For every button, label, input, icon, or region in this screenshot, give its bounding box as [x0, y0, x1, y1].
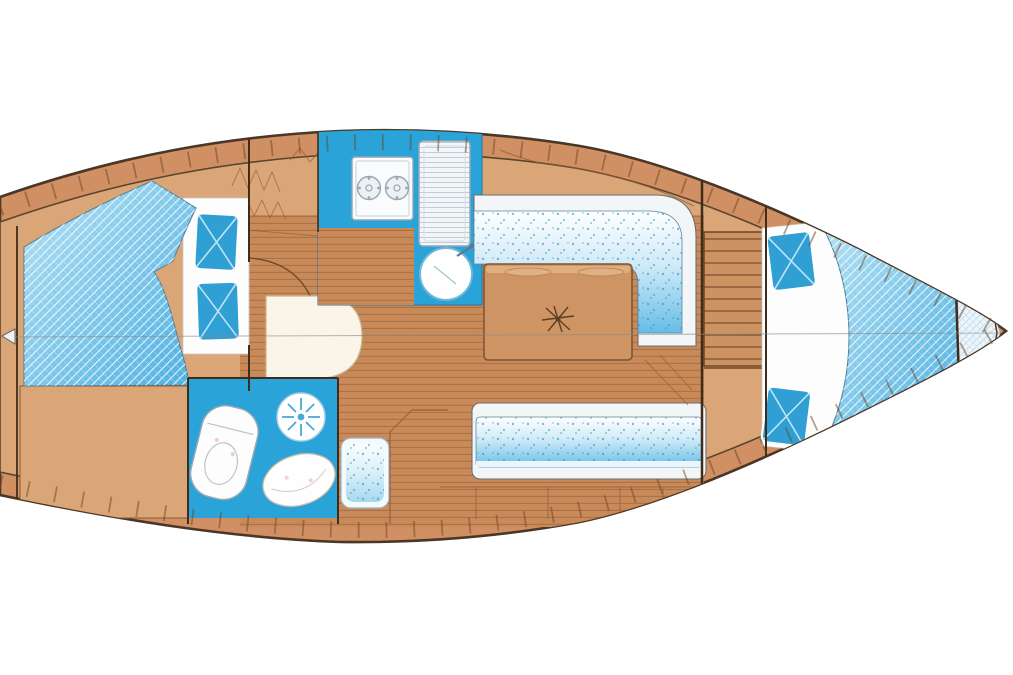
table-recess-1	[505, 268, 551, 276]
yacht-floor-plan	[0, 0, 1013, 675]
floor-plan-stage	[0, 0, 1013, 675]
stove	[352, 157, 413, 220]
v-berth-pillow-1	[194, 213, 239, 271]
saloon-table	[484, 264, 632, 360]
lazarette	[958, 262, 1000, 408]
burner-1	[358, 177, 381, 200]
shower-rose	[277, 393, 325, 441]
fridge	[419, 141, 470, 246]
washbasin-unit	[266, 296, 362, 378]
galley	[318, 130, 482, 305]
nav-seat	[341, 438, 389, 508]
table-recess-2	[578, 268, 624, 276]
v-berth-pillow-2	[196, 282, 240, 341]
burner-2	[386, 177, 409, 200]
v-berth-lower-flat	[20, 386, 188, 518]
aft-pillow-2	[761, 386, 811, 447]
starboard-settee	[472, 403, 706, 479]
companionway-steps	[704, 232, 766, 368]
aft-pillow-1	[766, 231, 816, 292]
